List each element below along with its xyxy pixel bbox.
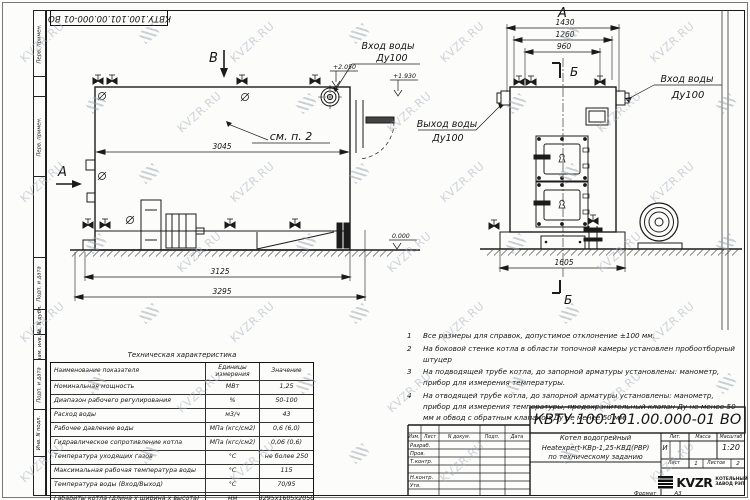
scale-label: Масштаб xyxy=(720,435,743,440)
table-cell: Номинальная мощность xyxy=(51,381,206,395)
table-row: Температура воды (Вход/Выход)°С70/95 xyxy=(51,479,313,493)
col-list: Лист xyxy=(424,435,436,440)
table-cell: м3/ч xyxy=(206,409,260,423)
table-cell: 3295х1605х2050 xyxy=(260,493,313,500)
front-inlet-dn: Ду100 xyxy=(671,90,705,101)
table-row: Расход водым3/ч43 xyxy=(51,409,313,423)
col-doc: N докум. xyxy=(448,435,470,440)
lit-value: И xyxy=(662,444,667,452)
table-row: Максимальная рабочая температура воды°С1… xyxy=(51,465,313,479)
level-zero: 0.000 xyxy=(392,233,410,240)
header-cell: Наименование показателя xyxy=(51,363,206,381)
mass-label: Масса xyxy=(695,435,710,440)
company-name: КОТЕЛЬНЫЙ ЗАВОД РЭП xyxy=(715,477,747,488)
note-item: 3На подводящей трубе котла, до запорной … xyxy=(407,367,741,389)
note-item: 2На боковой стенке котла в области топоч… xyxy=(407,344,741,366)
kvzr-logo-text: KVZR xyxy=(676,475,712,490)
table-cell: МПа (кгс/см2) xyxy=(206,423,260,437)
lit-label: Лит. xyxy=(669,435,680,440)
dim-3125: 3125 xyxy=(210,267,229,276)
dim-3295: 3295 xyxy=(212,287,231,296)
row-nkontr: Н.контр. xyxy=(410,475,433,481)
scale-value: 1:20 xyxy=(722,443,740,452)
table-cell: 43 xyxy=(260,409,313,423)
note-text: Все размеры для справок, допустимое откл… xyxy=(423,331,741,342)
header-cell: Значение xyxy=(260,363,313,381)
side-inlet-label: Вход воды xyxy=(361,41,415,52)
side-inlet-dn: Ду100 xyxy=(375,53,407,64)
front-section-label-bottom: Б xyxy=(564,293,572,307)
table-cell: Рабочее давление воды xyxy=(51,423,206,437)
table-cell: °С xyxy=(206,465,260,479)
row-prov: Пров. xyxy=(410,451,425,457)
table-cell: 0,06 (0,6) xyxy=(260,437,313,451)
row-utv: Утв. xyxy=(410,483,421,489)
table-row: Рабочее давление водыМПа (кгс/см2)0,6 (6… xyxy=(51,423,313,437)
level-mid: +1.930 xyxy=(393,73,416,80)
table-cell: 115 xyxy=(260,465,313,479)
table-cell: Диапазон рабочего регулирования xyxy=(51,395,206,409)
table-cell: Температура воды (Вход/Выход) xyxy=(51,479,206,493)
format-value: А3 xyxy=(674,491,681,497)
table-cell: Температура уходящих газов xyxy=(51,451,206,465)
note-item: 1Все размеры для справок, допустимое отк… xyxy=(407,331,741,342)
title-block-designation: КВТУ.100.101.00.000-01 ВО xyxy=(530,407,745,433)
level-top: +2.050 xyxy=(333,64,356,71)
table-cell: 0,6 (6,0) xyxy=(260,423,313,437)
note-number: 1 xyxy=(407,331,423,342)
sheet-value: 1 xyxy=(694,461,698,467)
table-row: Температура уходящих газов°Сне более 250 xyxy=(51,451,313,465)
table-cell: °С xyxy=(206,451,260,465)
spec-table-header: Наименование показателя Единицы измерени… xyxy=(51,363,313,381)
sheets-label: Листов xyxy=(707,461,725,466)
side-view-label: В xyxy=(209,51,218,66)
row-tkontr: Т.контр. xyxy=(410,459,432,465)
col-data: Дата xyxy=(511,435,523,440)
row-razrab: Разраб. xyxy=(410,443,430,449)
table-cell: Гидравлическое сопротивление котла xyxy=(51,437,206,451)
table-row: Номинальная мощностьМВт1,25 xyxy=(51,381,313,395)
table-cell: МПа (кгс/см2) xyxy=(206,437,260,451)
side-section-label: А xyxy=(57,165,67,180)
kvzr-logo-icon xyxy=(658,476,673,489)
col-izm: Изм. xyxy=(408,435,419,440)
doc-name-line: Heatexpert-КВр-1,25-КВД(РВР) xyxy=(530,444,661,454)
table-cell: МВт xyxy=(206,381,260,395)
furnace-door-icons xyxy=(534,136,589,227)
company-name-line: ЗАВОД РЭП xyxy=(715,482,747,488)
front-outlet-dn: Ду100 xyxy=(431,133,463,144)
dim-960: 960 xyxy=(557,42,572,51)
col-podp: Подп. xyxy=(485,435,500,440)
dim-1260: 1260 xyxy=(555,30,574,39)
format-label: Формат xyxy=(634,491,656,497)
dim-3045: 3045 xyxy=(212,142,231,151)
format-strip: Формат А3 xyxy=(634,491,682,497)
dim-1605: 1605 xyxy=(554,258,573,267)
front-outlet-label: Выход воды xyxy=(417,119,478,130)
table-cell: мм xyxy=(206,493,260,500)
doc-name-line: по техническому заданию xyxy=(530,453,661,463)
table-cell: 50-100 xyxy=(260,395,313,409)
spec-table: Техническая характеристика Наименование … xyxy=(50,351,314,500)
dim-1430: 1430 xyxy=(555,18,574,27)
table-cell: не более 250 xyxy=(260,451,313,465)
table-row: Габариты котла (длина х ширина х высота)… xyxy=(51,493,313,500)
see-note-callout: см. п. 2 xyxy=(270,130,313,143)
header-cell: Единицы измерения xyxy=(206,363,260,381)
table-cell: % xyxy=(206,395,260,409)
front-inlet-label: Вход воды xyxy=(660,74,714,85)
table-cell: Габариты котла (длина х ширина х высота) xyxy=(51,493,206,500)
sheet-label: Лист xyxy=(668,461,680,466)
table-cell: Максимальная рабочая температура воды xyxy=(51,465,206,479)
note-text: На боковой стенке котла в области топочн… xyxy=(423,344,741,366)
note-number: 3 xyxy=(407,367,423,389)
front-section-label-top: Б xyxy=(570,65,578,79)
doc-name-line: Котел водогрейный xyxy=(530,434,661,444)
drawing-sheet: Перв. примен. Перв. примен. Подп. и дата… xyxy=(0,0,750,500)
note-text: На подводящей трубе котла, до запорной а… xyxy=(423,367,741,389)
table-cell: Расход воды xyxy=(51,409,206,423)
table-row: Диапазон рабочего регулирования%50-100 xyxy=(51,395,313,409)
sheets-value: 2 xyxy=(736,461,740,467)
table-row: Гидравлическое сопротивление котлаМПа (к… xyxy=(51,437,313,451)
side-view-linework xyxy=(56,50,420,301)
note-number: 4 xyxy=(407,391,423,423)
title-block-doc-name: Котел водогрейный Heatexpert-КВр-1,25-КВ… xyxy=(530,434,661,463)
note-number: 2 xyxy=(407,344,423,366)
table-cell: 1,25 xyxy=(260,381,313,395)
spec-table-title: Техническая характеристика xyxy=(50,351,314,362)
table-cell: °С xyxy=(206,479,260,493)
spec-table-body: Номинальная мощностьМВт1,25Диапазон рабо… xyxy=(51,381,313,500)
table-cell: 70/95 xyxy=(260,479,313,493)
